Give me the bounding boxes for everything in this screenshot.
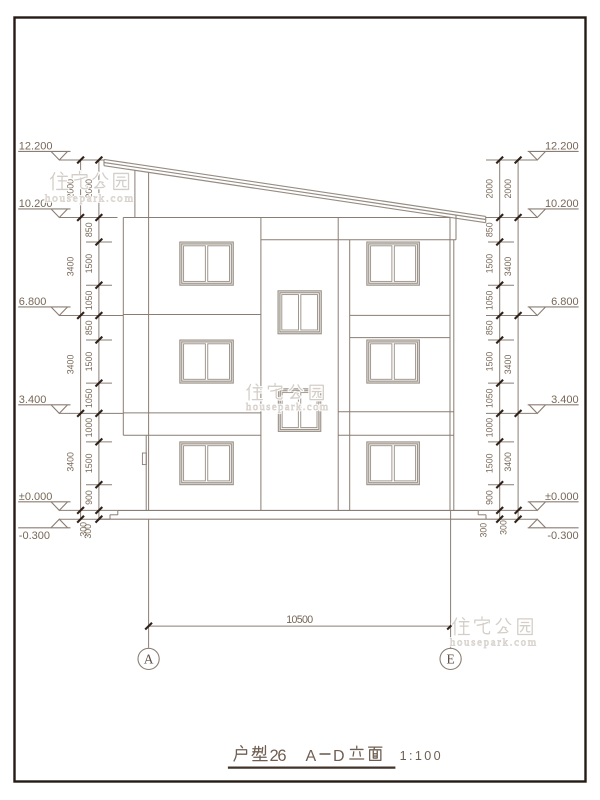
svg-text:10.200: 10.200 [545, 198, 579, 210]
svg-text:A: A [144, 652, 154, 667]
svg-text:±0.000: ±0.000 [19, 491, 53, 503]
svg-text:1050: 1050 [84, 290, 94, 310]
svg-text:300: 300 [498, 520, 508, 535]
svg-text:-0.300: -0.300 [547, 530, 578, 542]
svg-text:1050: 1050 [485, 388, 495, 408]
svg-text:300: 300 [79, 522, 89, 537]
svg-text:1:100: 1:100 [400, 749, 441, 763]
svg-text:3.400: 3.400 [19, 394, 47, 406]
svg-text:3400: 3400 [66, 257, 76, 277]
svg-text:2000: 2000 [503, 179, 513, 199]
svg-text:1000: 1000 [84, 418, 94, 438]
svg-text:850: 850 [84, 320, 94, 335]
svg-text:1500: 1500 [84, 352, 94, 372]
svg-text:1500: 1500 [485, 352, 495, 372]
svg-text:-0.300: -0.300 [19, 530, 50, 542]
svg-text:850: 850 [485, 222, 495, 237]
svg-text:12.200: 12.200 [545, 140, 579, 152]
svg-text:10500: 10500 [286, 614, 313, 626]
svg-text:3400: 3400 [66, 452, 76, 472]
svg-text:850: 850 [485, 320, 495, 335]
svg-text:D: D [333, 748, 345, 765]
svg-text:300: 300 [478, 523, 488, 538]
svg-text:3400: 3400 [503, 452, 513, 472]
svg-text:2000: 2000 [485, 179, 495, 199]
svg-text:1050: 1050 [84, 388, 94, 408]
svg-text:6.800: 6.800 [19, 296, 47, 308]
svg-text:26: 26 [270, 747, 287, 765]
svg-text:1500: 1500 [485, 254, 495, 274]
svg-text:6.800: 6.800 [551, 296, 579, 308]
svg-text:1500: 1500 [84, 254, 94, 274]
svg-text:900: 900 [84, 490, 94, 505]
svg-text:1500: 1500 [84, 453, 94, 473]
svg-text:12.200: 12.200 [19, 140, 53, 152]
svg-text:850: 850 [84, 222, 94, 237]
svg-text:1000: 1000 [485, 418, 495, 438]
svg-text:900: 900 [485, 490, 495, 505]
svg-text:A: A [306, 748, 317, 765]
svg-text:1050: 1050 [485, 290, 495, 310]
svg-text:E: E [446, 652, 454, 667]
svg-text:3.400: 3.400 [551, 394, 579, 406]
svg-text:3400: 3400 [503, 257, 513, 277]
svg-text:3400: 3400 [503, 355, 513, 375]
svg-text:3400: 3400 [66, 355, 76, 375]
svg-text:±0.000: ±0.000 [545, 491, 579, 503]
svg-text:1500: 1500 [485, 453, 495, 473]
